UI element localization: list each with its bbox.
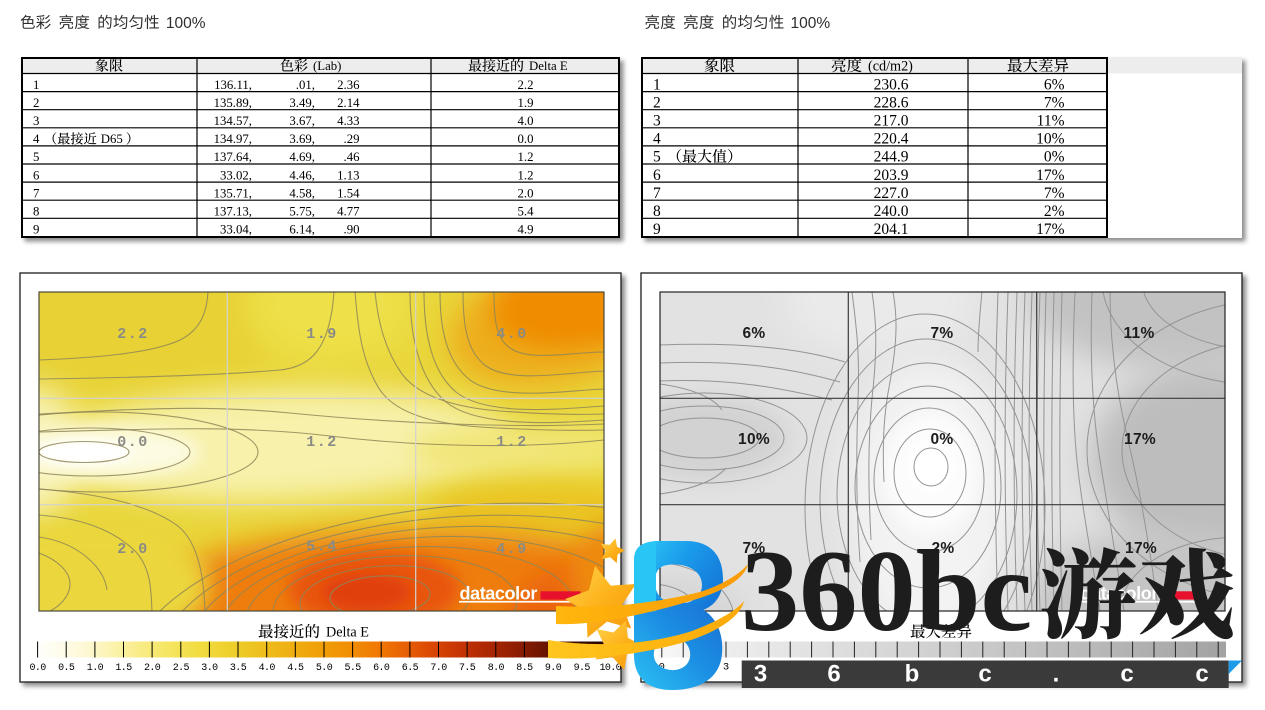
svg-text:0%: 0% [1044,149,1065,166]
svg-text:240.0: 240.0 [874,203,909,220]
svg-text:3: 3 [754,661,767,688]
svg-text:135.71,: 135.71, [214,186,252,200]
svg-text:Delta E: Delta E [326,625,369,641]
svg-text:c: c [1195,661,1208,688]
svg-text:10%: 10% [1036,131,1065,148]
svg-text:5.4: 5.4 [306,539,338,556]
svg-text:c: c [1120,661,1133,688]
svg-text:100%: 100% [166,15,206,32]
svg-text:.46: .46 [344,150,361,164]
svg-text:244.9: 244.9 [874,149,909,166]
svg-text:9.0: 9.0 [545,663,562,674]
svg-text:6.14,: 6.14, [289,223,315,237]
svg-text:4.9: 4.9 [496,541,528,558]
svg-text:11%: 11% [1123,325,1154,342]
svg-text:8: 8 [33,205,39,219]
svg-text:17%: 17% [1036,221,1065,238]
svg-text:9: 9 [653,221,661,238]
svg-text:7.0: 7.0 [430,663,447,674]
svg-text:134.97,: 134.97, [214,132,252,146]
svg-text:(Lab): (Lab) [313,59,341,73]
svg-text:3: 3 [33,114,39,128]
svg-text:2: 2 [653,94,661,111]
svg-text:3.0: 3.0 [201,663,218,674]
svg-text:33.02,: 33.02, [220,168,252,182]
svg-text:136.11,: 136.11, [214,78,252,92]
svg-text:4.0: 4.0 [496,326,528,343]
svg-text:0.0: 0.0 [518,132,534,146]
svg-text:0.0: 0.0 [29,663,46,674]
svg-text:4.58,: 4.58, [289,186,315,200]
svg-text:2.0: 2.0 [144,663,161,674]
svg-text:6: 6 [653,167,661,184]
svg-text:1.0: 1.0 [87,663,104,674]
svg-text:9: 9 [33,223,39,237]
svg-text:360bc: 360bc [741,527,1032,656]
svg-text:.: . [1053,661,1060,688]
svg-text:4.0: 4.0 [259,663,276,674]
svg-text:1.5: 1.5 [115,663,132,674]
svg-text:0.0: 0.0 [117,434,149,451]
svg-text:3.5: 3.5 [230,663,247,674]
svg-text:(cd/m2): (cd/m2) [868,59,913,75]
svg-text:6: 6 [827,661,840,688]
svg-text:4.46,: 4.46, [289,168,315,182]
svg-text:4: 4 [33,132,40,146]
svg-text:10.0: 10.0 [599,663,621,674]
svg-text:1.9: 1.9 [306,326,338,343]
svg-text:3: 3 [653,113,661,130]
svg-text:137.64,: 137.64, [214,150,252,164]
svg-text:3: 3 [723,662,729,674]
svg-text:6: 6 [33,168,40,182]
svg-text:4: 4 [653,131,661,148]
svg-text:4.9: 4.9 [518,223,534,237]
svg-text:5.0: 5.0 [316,663,333,674]
svg-text:2.5: 2.5 [173,663,190,674]
svg-text:4.33: 4.33 [337,114,359,128]
svg-text:2.2: 2.2 [117,326,149,343]
svg-text:4.69,: 4.69, [289,150,315,164]
svg-text:4.0: 4.0 [518,114,534,128]
svg-text:1.54: 1.54 [337,186,360,200]
svg-text:1.2: 1.2 [496,434,528,451]
svg-text:2.0: 2.0 [117,541,149,558]
svg-text:6.5: 6.5 [402,663,419,674]
svg-text:2.2: 2.2 [518,78,534,92]
svg-text:.01,: .01, [296,78,315,92]
svg-text:10%: 10% [738,431,770,448]
svg-text:1.13: 1.13 [337,168,359,182]
svg-text:Delta E: Delta E [529,59,568,73]
svg-text:0%: 0% [930,431,953,448]
svg-text:0.5: 0.5 [58,663,75,674]
svg-text:b: b [905,661,920,688]
svg-text:135.89,: 135.89, [214,96,252,110]
svg-text:11%: 11% [1037,113,1065,130]
svg-text:228.6: 228.6 [874,94,909,111]
svg-text:220.4: 220.4 [874,131,909,148]
svg-text:5: 5 [653,149,661,166]
svg-text:3.67,: 3.67, [289,114,315,128]
svg-text:3.49,: 3.49, [289,96,315,110]
svg-text:17%: 17% [1124,431,1156,448]
svg-text:100%: 100% [791,15,831,32]
svg-text:137.13,: 137.13, [214,205,252,219]
svg-text:227.0: 227.0 [874,185,909,202]
svg-text:5.4: 5.4 [518,205,535,219]
svg-text:5.5: 5.5 [344,663,361,674]
svg-text:2.14: 2.14 [337,96,360,110]
svg-text:9.5: 9.5 [574,663,591,674]
svg-text:2.36: 2.36 [337,78,360,92]
svg-text:17%: 17% [1125,540,1157,557]
svg-text:1: 1 [653,76,661,93]
svg-text:7%: 7% [1044,94,1065,111]
svg-text:204.1: 204.1 [874,221,909,238]
svg-text:33.04,: 33.04, [220,223,252,237]
svg-text:1.2: 1.2 [518,168,534,182]
svg-text:3.69,: 3.69, [289,132,315,146]
svg-text:1.2: 1.2 [518,150,534,164]
svg-text:7: 7 [653,185,661,202]
svg-text:7%: 7% [930,325,953,342]
svg-text:2%: 2% [1044,203,1065,220]
svg-text:6%: 6% [742,325,765,342]
svg-text:5.75,: 5.75, [289,205,315,219]
svg-text:8: 8 [653,203,661,220]
svg-text:datacolor: datacolor [460,584,538,604]
svg-text:2: 2 [33,96,39,110]
svg-text:6%: 6% [1044,76,1065,93]
svg-text:230.6: 230.6 [874,76,909,93]
svg-text:8.0: 8.0 [488,663,505,674]
svg-text:.90: .90 [344,223,360,237]
svg-text:8.5: 8.5 [516,663,533,674]
svg-text:.29: .29 [344,132,360,146]
svg-text:134.57,: 134.57, [214,114,252,128]
svg-text:203.9: 203.9 [874,167,909,184]
svg-text:D65: D65 [101,132,123,146]
svg-text:1.2: 1.2 [306,434,338,451]
svg-text:1.9: 1.9 [518,96,534,110]
svg-text:c: c [978,661,991,688]
svg-text:217.0: 217.0 [874,113,909,130]
svg-text:1: 1 [33,78,39,92]
svg-text:7.5: 7.5 [459,663,476,674]
svg-text:4.77: 4.77 [337,205,360,219]
svg-text:7: 7 [33,186,40,200]
svg-text:7%: 7% [1044,185,1065,202]
svg-text:5: 5 [33,150,39,164]
svg-text:6.0: 6.0 [373,663,390,674]
svg-text:4.5: 4.5 [287,663,304,674]
svg-text:2.0: 2.0 [518,186,534,200]
svg-text:17%: 17% [1036,167,1065,184]
